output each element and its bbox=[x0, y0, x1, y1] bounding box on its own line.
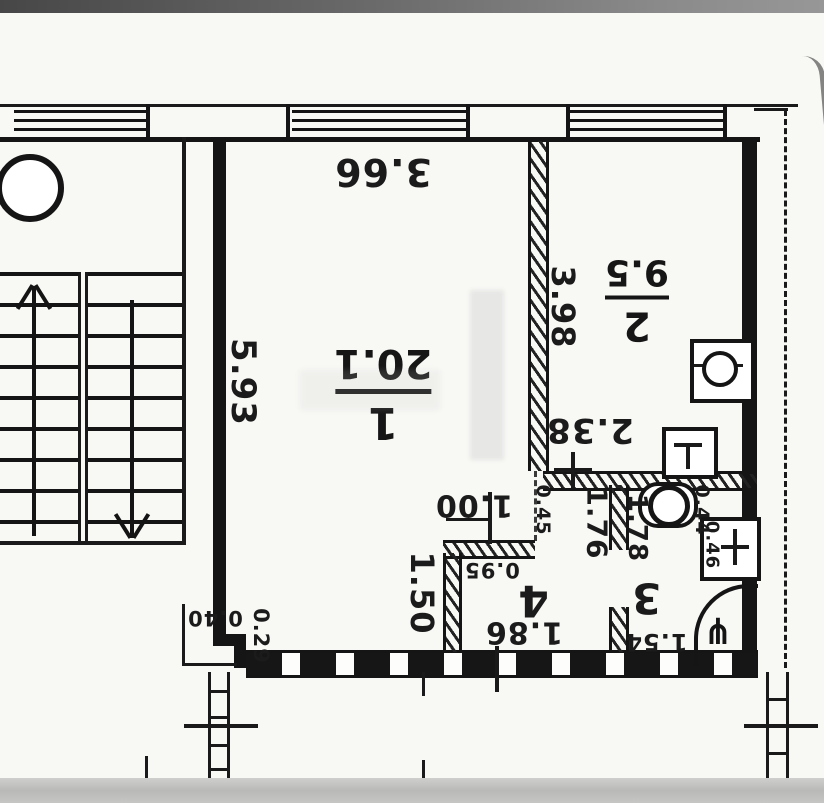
dimension-tick bbox=[744, 724, 818, 728]
facade-outer-line bbox=[0, 104, 798, 107]
room2-label: 2 9.5 bbox=[605, 252, 669, 349]
stove-icon bbox=[662, 427, 718, 479]
facade-inner-line bbox=[0, 137, 760, 142]
photo-edge-curl bbox=[802, 54, 824, 150]
photo-edge-bottom bbox=[0, 778, 824, 803]
room1-label: 1 20.1 bbox=[334, 340, 433, 448]
photo-edge-top bbox=[0, 0, 824, 13]
dim-hall-length: 1.76 bbox=[581, 486, 614, 559]
dim-room1-width: 3.66 bbox=[334, 150, 432, 194]
room-area: 20.1 bbox=[334, 340, 433, 386]
balcony-rail-rung bbox=[208, 690, 230, 693]
watermark bbox=[470, 290, 504, 460]
partition-hall-left bbox=[443, 553, 462, 652]
dim-bath-length: 1.78 bbox=[622, 494, 652, 562]
dim-corner-w: 0.40 bbox=[187, 606, 243, 630]
balcony-rail-rung bbox=[208, 744, 230, 747]
room-number: 1 bbox=[368, 397, 399, 448]
stairwell-bottom-line bbox=[0, 541, 186, 545]
room3-label: 3 bbox=[631, 574, 661, 623]
recess-outline bbox=[182, 663, 237, 666]
balcony-rail-rung bbox=[208, 768, 230, 771]
balcony-rail-rung bbox=[766, 698, 789, 701]
stair-stringer-line bbox=[85, 272, 88, 545]
balcony-rail-rung bbox=[766, 752, 789, 755]
dim-room1-recess: 1.50 bbox=[403, 552, 441, 635]
adjacent-wall-dashed-line bbox=[784, 110, 787, 668]
duct-cross-icon bbox=[721, 545, 749, 549]
window-icon bbox=[292, 110, 466, 131]
stair-flight-right bbox=[88, 272, 182, 545]
dim-duct-width: 0.46 bbox=[702, 521, 723, 569]
dimension-tick bbox=[184, 724, 258, 728]
dim-door-opening: 1.00 bbox=[435, 488, 513, 523]
wall-pier bbox=[466, 104, 470, 142]
dimension-tick bbox=[495, 646, 499, 692]
dimension-tick bbox=[571, 452, 575, 488]
window-icon bbox=[570, 110, 723, 131]
dim-room1-length: 5.93 bbox=[223, 338, 263, 426]
stairs-up-arrow-icon bbox=[32, 286, 36, 536]
stairwell-wall bbox=[182, 137, 186, 545]
dim-corner-h: 0.29 bbox=[249, 608, 273, 664]
wall-pier bbox=[723, 104, 727, 142]
stairs-down-arrow-icon bbox=[130, 300, 134, 538]
dimension-tick bbox=[422, 672, 425, 696]
room-number: 2 bbox=[623, 303, 651, 349]
wall-pier bbox=[286, 104, 290, 142]
shower-icon: ⋔ bbox=[698, 612, 738, 656]
dim-hall-top: 0.95 bbox=[464, 558, 520, 582]
dim-room2-length: 3.98 bbox=[544, 266, 582, 349]
balcony-rail-rung bbox=[208, 716, 230, 719]
balcony-rail bbox=[208, 672, 211, 778]
stair-stringer-line bbox=[78, 272, 81, 545]
stove-mark bbox=[686, 447, 690, 469]
fraction-line bbox=[335, 389, 431, 394]
wall-pier bbox=[566, 104, 570, 142]
wall-corner-jog bbox=[213, 634, 246, 646]
balcony-rail bbox=[227, 672, 230, 778]
dim-hall-bottom: 1.86 bbox=[485, 615, 563, 650]
garbage-chute-icon bbox=[0, 154, 64, 222]
recess-outline bbox=[182, 604, 185, 666]
dim-bath-width: 1.54 bbox=[624, 628, 687, 656]
room-area: 9.5 bbox=[605, 252, 669, 293]
toilet-bowl-icon bbox=[648, 485, 690, 527]
dim-room2-lower: 2.38 bbox=[546, 410, 634, 450]
floor-plan: ⋔ 1 20.1 2 9.5 bbox=[0, 0, 824, 803]
dim-wall-stub: 0.45 bbox=[532, 485, 554, 536]
shaft-stub-line bbox=[754, 108, 788, 111]
window-icon bbox=[14, 110, 146, 131]
fraction-line bbox=[605, 296, 669, 300]
stair-flight-left bbox=[0, 272, 78, 545]
wall-pier bbox=[146, 104, 150, 142]
sink-basin-icon bbox=[702, 351, 738, 387]
